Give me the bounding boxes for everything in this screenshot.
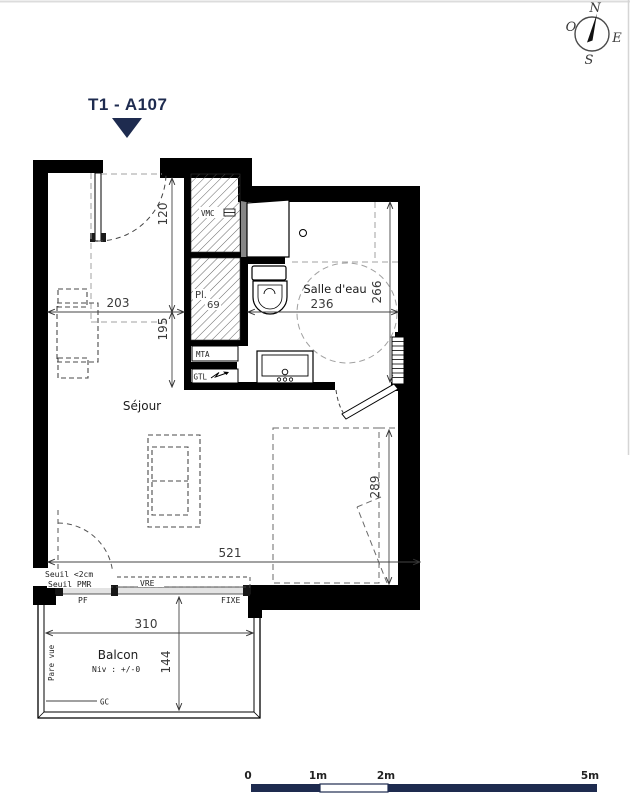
compass-rose: N O E S	[566, 1, 623, 68]
pf-label: PF	[78, 596, 88, 605]
entry-door-leaf	[95, 173, 101, 241]
chair-bottom	[58, 358, 88, 378]
balcon-level-label: Niv : +/-0	[92, 665, 140, 674]
zone-diagonal-1	[357, 507, 387, 583]
balcon-label: Balcon	[98, 648, 138, 662]
chair-top	[58, 289, 87, 307]
mta-label: MTA	[196, 350, 210, 359]
balcony-railing-inner	[44, 594, 254, 712]
gc-label: GC	[100, 698, 109, 707]
vre-shutter-box	[110, 577, 250, 587]
entry-door	[90, 173, 166, 242]
vmc-label: VMC	[201, 209, 215, 218]
apartment-header: T1 - A107	[88, 95, 167, 138]
locator-triangle-icon	[112, 118, 142, 138]
dim-120: 120	[156, 203, 170, 226]
floorplan-page: N O E S T1 - A107 VMC Pl.	[0, 0, 630, 800]
railing-corner-right	[254, 712, 260, 718]
dim-203: 203	[107, 296, 130, 310]
bath-door-leaf	[342, 384, 398, 419]
toilet-tank	[252, 266, 286, 280]
shower-drain-icon	[300, 230, 307, 237]
radiator-valve	[395, 332, 401, 337]
railing-corner-left	[38, 712, 44, 718]
pare-vue-label: Pare vue	[47, 644, 56, 681]
scale-bar: 0 1m 2m 5m	[244, 770, 599, 792]
scale-2m-label: 2m	[377, 770, 395, 782]
towel-radiator	[392, 337, 404, 384]
balcony-railing-outer	[38, 594, 260, 718]
dim-521: 521	[219, 546, 242, 560]
pmr-turning-circle	[297, 263, 397, 363]
dim-289: 289	[368, 476, 382, 499]
seuil-2cm-label: Seuil <2cm	[45, 570, 93, 579]
wall-bottom-right	[248, 585, 398, 610]
seuil-pmr-label: Seuil PMR	[48, 580, 92, 589]
scale-1m-label: 1m	[309, 770, 327, 782]
dim-266: 266	[370, 281, 384, 304]
dim-236: 236	[311, 297, 334, 311]
compass-west-label: O	[566, 20, 577, 35]
compass-north-label: N	[588, 1, 601, 16]
compass-east-label: E	[611, 31, 622, 46]
scale-bar-white-segment	[320, 784, 388, 792]
technical-shafts: VMC Pl. 69 MTA GTL	[191, 174, 240, 383]
dim-144: 144	[159, 651, 173, 674]
vre-label: VRE	[140, 579, 155, 588]
bed-zone	[273, 428, 379, 583]
scale-bar-body	[251, 784, 597, 792]
wall-left	[33, 160, 48, 568]
salle-deau-label: Salle d'eau	[303, 282, 366, 296]
wall-top-bath	[252, 186, 398, 202]
scale-5m-label: 5m	[581, 770, 599, 782]
apartment-title: T1 - A107	[88, 95, 167, 114]
dim-310: 310	[135, 617, 158, 631]
wall-duct-left	[184, 173, 191, 390]
floorplan-drawing: N O E S T1 - A107 VMC Pl.	[0, 0, 630, 800]
balcony: Balcon Niv : +/-0 Pare vue GC	[38, 594, 260, 718]
bath-door-swing-arc	[336, 390, 344, 414]
compass-south-label: S	[585, 53, 594, 68]
wall-duct-divider	[191, 252, 240, 258]
gtl-label: GTL	[194, 373, 208, 382]
dim-195: 195	[156, 318, 170, 341]
placard-dim-label: 69	[207, 300, 220, 311]
fixe-label: FIXE	[221, 596, 240, 605]
wall-right	[398, 186, 420, 610]
wall-mta-gtl-divider	[191, 362, 237, 369]
wall-closet-bottom	[184, 340, 248, 346]
scale-0-label: 0	[244, 770, 251, 782]
wall-top-entry	[33, 160, 103, 173]
sejour-label: Séjour	[123, 399, 161, 413]
vanity-counter	[257, 351, 313, 383]
shower-tray	[247, 200, 289, 257]
